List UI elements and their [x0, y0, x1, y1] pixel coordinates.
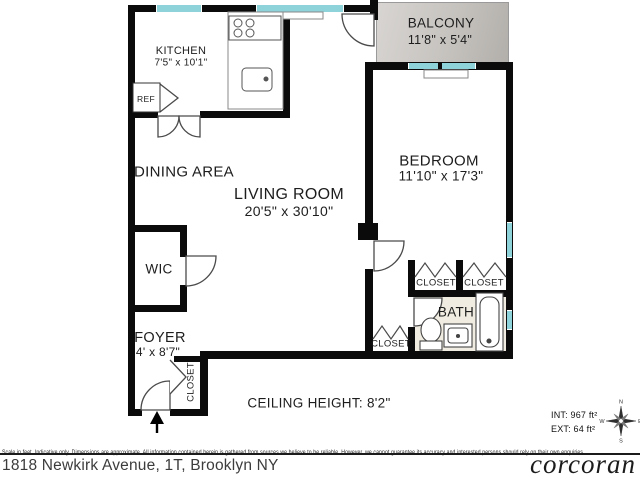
living-dims: 20'5" x 30'10": [245, 203, 334, 219]
floorplan-canvas: N S W E KITCHEN 7'5" x 10'1" DINING AREA…: [0, 0, 640, 479]
faucet: [264, 77, 268, 81]
wall-balcony-stub: [370, 0, 378, 20]
compass-n: N: [619, 400, 623, 406]
stove: [229, 16, 281, 40]
bath-label: BATH: [438, 305, 474, 320]
wall-wic-right-lower: [180, 285, 187, 307]
wall-foyer-bottom-l: [128, 409, 142, 416]
kitchen-label: KITCHEN: [156, 45, 206, 57]
closet-foyer-label: CLOSET: [186, 362, 197, 402]
closet-bedroom-right-label: CLOSET: [464, 278, 504, 289]
wall-foyer-bottom-r: [170, 409, 208, 416]
bedroom-window-sill: [424, 70, 468, 78]
ext-area: EXT: 64 ft²: [551, 423, 597, 437]
wall-kitchen-right: [283, 5, 290, 118]
foyer-dims: 4' x 8'7": [136, 345, 180, 359]
wall-column-stub: [358, 223, 378, 240]
wall-wic-bottom: [128, 305, 187, 312]
balcony-label: BALCONY: [408, 16, 475, 31]
wic-label: WIC: [145, 262, 172, 277]
kitchen-dims: 7'5" x 10'1": [155, 58, 208, 69]
living-room-window: [256, 5, 344, 12]
kitchen-door-right: [179, 116, 200, 137]
entry-arrow: [150, 411, 164, 433]
living-label: LIVING ROOM: [234, 186, 344, 204]
wall-kitchen-bottom-l: [128, 111, 158, 118]
burner: [234, 29, 242, 37]
balcony-dims: 11'8" x 5'4": [408, 33, 472, 47]
burner: [234, 19, 242, 27]
kitchen-sink: [242, 68, 272, 91]
corcoran-logo: corcoran: [530, 449, 636, 479]
wall-kitchen-bottom-r: [200, 111, 290, 118]
foyer-closet-door: [170, 360, 186, 394]
wall-left-exterior: [128, 5, 135, 416]
kitchen-counter: [228, 12, 283, 109]
closet-bifold-hall: [373, 326, 408, 339]
bedroom-window: [507, 222, 512, 258]
closet-hall-label: CLOSET: [371, 339, 411, 350]
ceiling-note: CEILING HEIGHT: 8'2": [247, 396, 390, 411]
wall-bottom-main: [200, 351, 513, 359]
compass-w: W: [599, 419, 605, 425]
area-summary: INT: 967 ft² EXT: 64 ft²: [551, 409, 597, 436]
balcony-sliding-door: [408, 63, 476, 69]
bedroom-label: BEDROOM: [399, 153, 479, 170]
wic-door: [186, 256, 216, 286]
kitchen-door-left: [158, 116, 179, 137]
closet-bedroom-left-label: CLOSET: [416, 278, 456, 289]
kitchen-window: [156, 5, 202, 12]
dining-label: DINING AREA: [134, 164, 234, 181]
closet-bifold-right: [463, 263, 506, 277]
listing-address: 1818 Newkirk Avenue, 1T, Brooklyn NY: [2, 457, 279, 475]
entry-door: [141, 381, 170, 410]
bedroom-door: [374, 241, 404, 271]
closet-bifold-left: [415, 263, 456, 277]
int-area: INT: 967 ft²: [551, 409, 597, 423]
bedroom-dims: 11'10" x 17'3": [399, 169, 484, 184]
burner: [246, 19, 254, 27]
wall-wic-top: [128, 225, 187, 232]
wall-bath-top: [408, 290, 513, 297]
fridge-door: [160, 84, 178, 112]
bath-window: [507, 310, 512, 330]
compass: N S W E: [599, 400, 640, 445]
wall-wic-right-upper: [180, 225, 187, 257]
burner: [246, 29, 254, 37]
wall-bedroom-living: [365, 62, 373, 223]
fridge-label: REF: [137, 94, 155, 104]
slider-mullion: [438, 62, 442, 70]
foyer-label: FOYER: [134, 330, 185, 346]
